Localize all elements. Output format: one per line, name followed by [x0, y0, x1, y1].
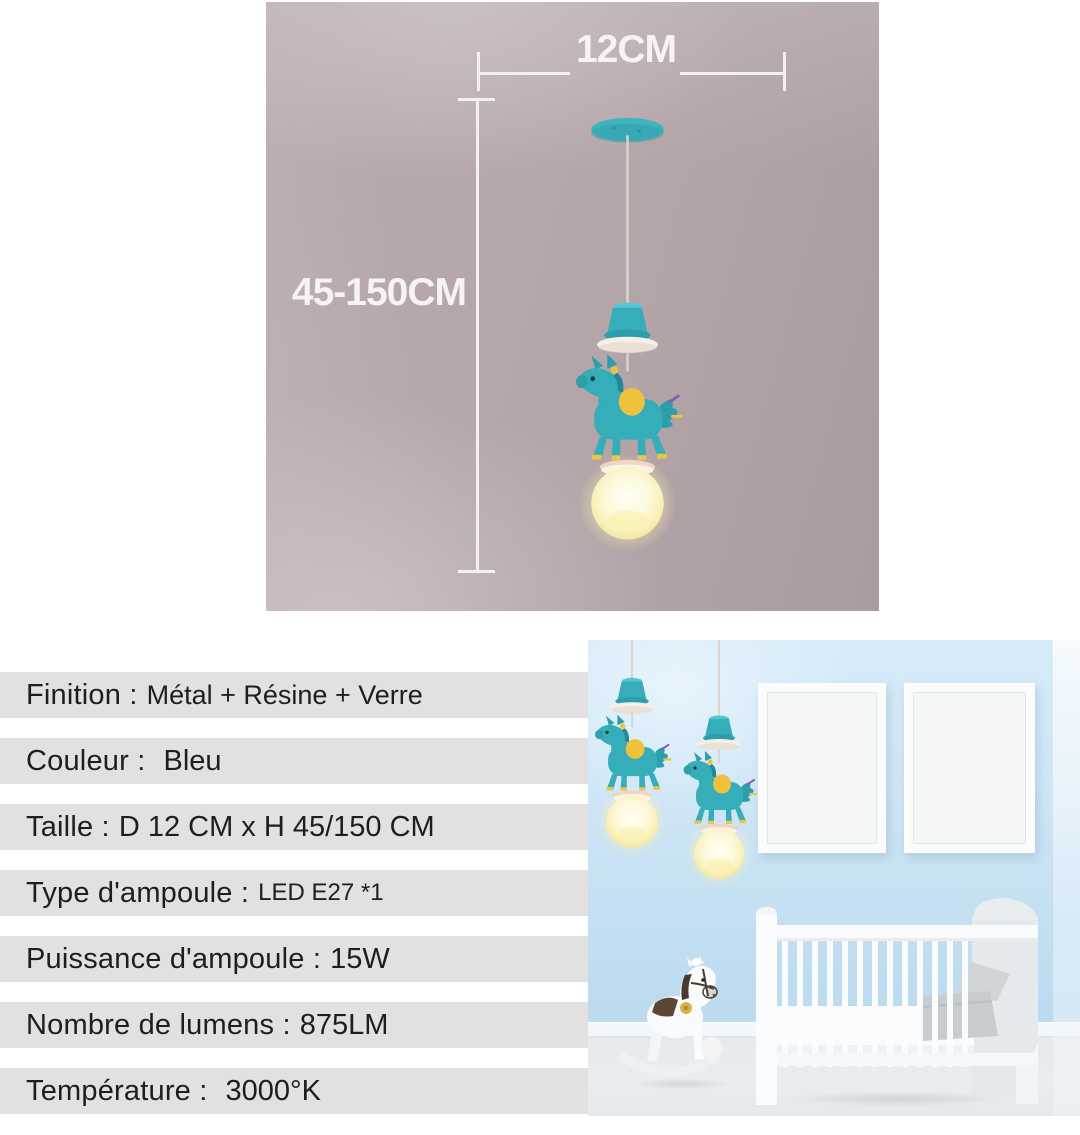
spec-row-couleur: Couleur : Bleu	[0, 738, 588, 784]
dimension-line-vertical	[476, 98, 479, 572]
wall-frame-right	[904, 683, 1035, 853]
frame-mat	[767, 692, 877, 844]
spec-row-finition: Finition : Métal + Résine + Verre	[0, 672, 588, 718]
spec-label: Finition :	[26, 679, 138, 712]
spec-value: 15W	[330, 943, 390, 976]
crib	[748, 895, 1040, 1107]
spec-row-puissance: Puissance d'ampoule : 15W	[0, 936, 588, 982]
spec-row-type-ampoule: Type d'ampoule : LED E27 *1	[0, 870, 588, 916]
spec-row-temperature: Température : 3000°K	[0, 1068, 588, 1114]
spec-value: D 12 CM x H 45/150 CM	[119, 811, 435, 844]
product-sheet: 12CM 45-150CM Finition : Métal + Résine …	[0, 0, 1080, 1135]
spec-value: LED E27 *1	[258, 879, 383, 907]
spec-row-taille: Taille : D 12 CM x H 45/150 CM	[0, 804, 588, 850]
frame-mat	[913, 692, 1026, 844]
spec-label: Puissance d'ampoule :	[26, 943, 321, 976]
dimension-line-horizontal	[680, 72, 785, 75]
dimension-tick-right	[783, 52, 786, 91]
dimension-tick-left	[477, 52, 480, 91]
dimension-photo: 12CM 45-150CM	[266, 2, 879, 611]
dimension-tick-top	[458, 98, 495, 101]
height-dimension-label: 45-150CM	[274, 271, 466, 315]
spec-label: Température :	[26, 1075, 208, 1108]
spec-label: Type d'ampoule :	[26, 877, 249, 910]
spec-label: Taille :	[26, 811, 110, 844]
wall-frame-left	[758, 683, 886, 853]
dimension-line-horizontal	[479, 72, 570, 75]
spec-value: 875LM	[300, 1009, 389, 1042]
dimension-tick-bottom	[458, 570, 495, 573]
spec-value: Bleu	[163, 745, 221, 778]
room-photo	[588, 640, 1080, 1116]
spec-value: 3000°K	[226, 1075, 321, 1108]
width-dimension-label: 12CM	[571, 28, 681, 72]
spec-value: Métal + Résine + Verre	[147, 680, 423, 711]
rocking-horse	[615, 955, 735, 1090]
pendant-lamp-right	[669, 640, 769, 880]
spec-row-lumens: Nombre de lumens : 875LM	[0, 1002, 588, 1048]
spec-label: Couleur :	[26, 745, 145, 778]
wall-corner-highlight	[1053, 640, 1080, 1116]
pendant-lamp-illustration	[555, 115, 700, 541]
spec-label: Nombre de lumens :	[26, 1009, 291, 1042]
